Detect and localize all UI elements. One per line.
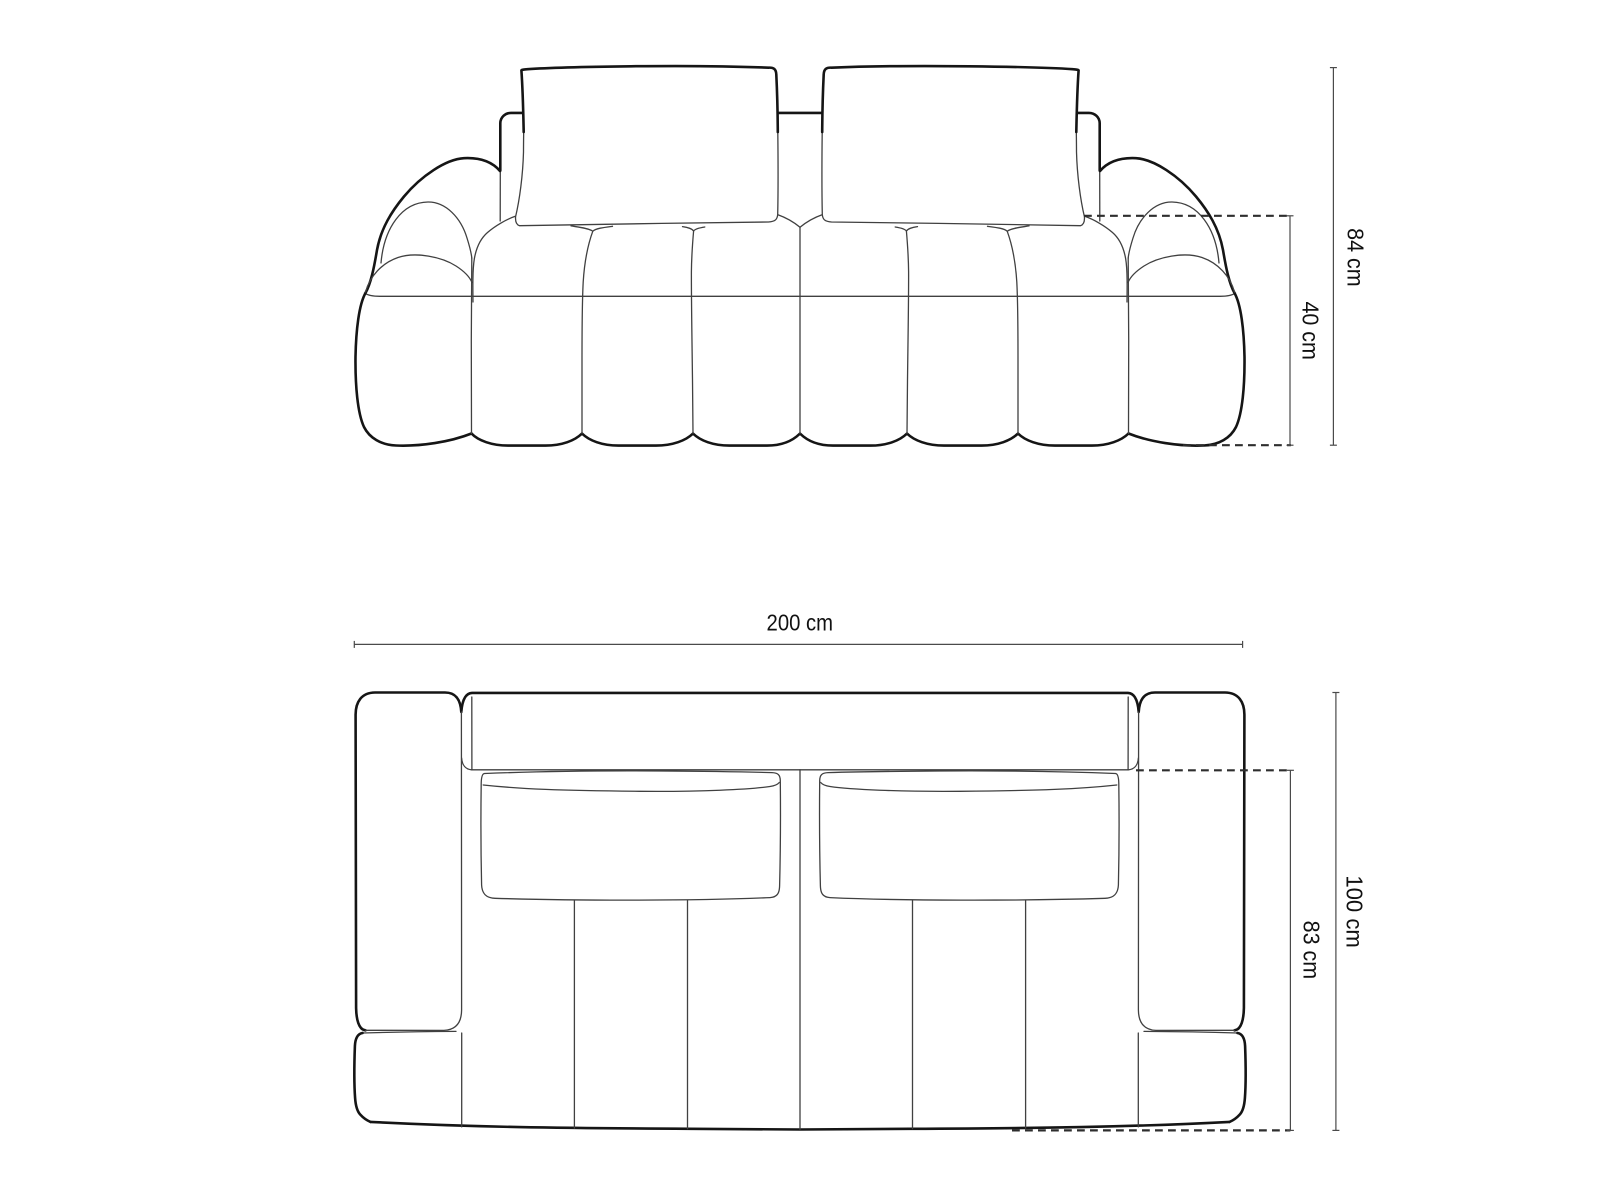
svg-text:100 cm: 100 cm <box>1342 875 1368 948</box>
svg-text:40 cm: 40 cm <box>1298 301 1324 360</box>
svg-text:83 cm: 83 cm <box>1299 921 1325 980</box>
svg-text:200 cm: 200 cm <box>767 610 834 636</box>
svg-text:84 cm: 84 cm <box>1342 228 1368 287</box>
